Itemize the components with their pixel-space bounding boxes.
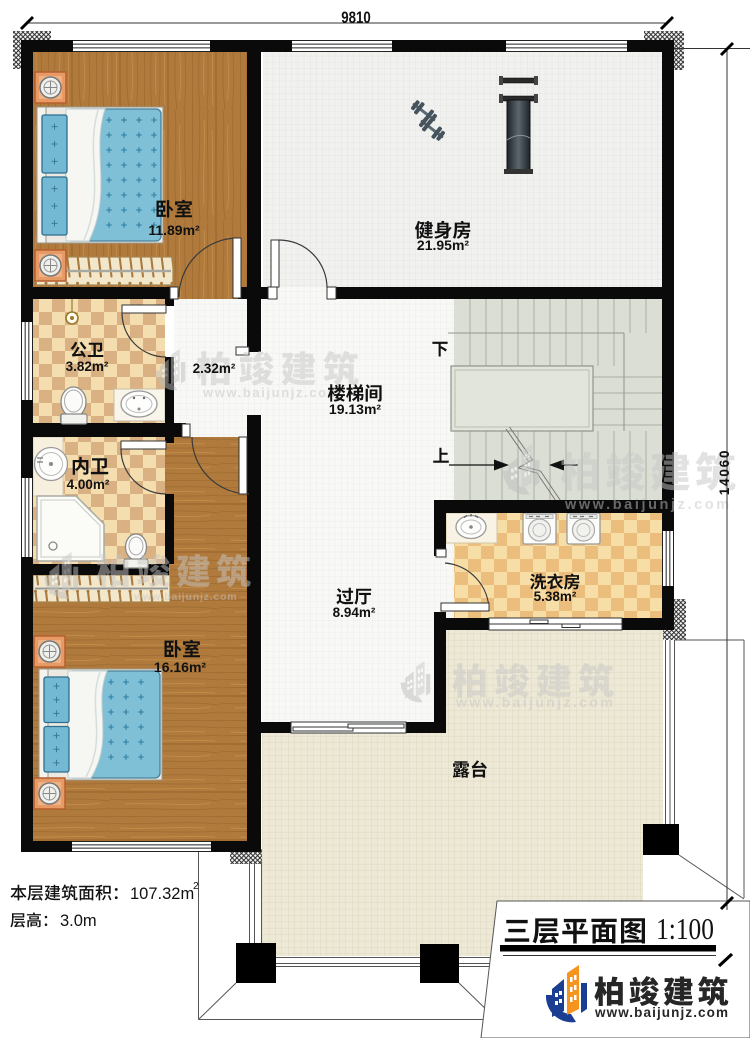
svg-text:www.baijunjz.com: www.baijunjz.com [133, 591, 237, 603]
svg-text:2.32m²: 2.32m² [193, 361, 236, 376]
svg-text:www.baijunjz.com: www.baijunjz.com [564, 497, 732, 513]
svg-text:www.baijunjz.com: www.baijunjz.com [455, 694, 615, 710]
svg-text:11.89m²: 11.89m² [148, 222, 200, 238]
svg-text:14060: 14060 [717, 449, 732, 496]
svg-text:5.38m²: 5.38m² [534, 589, 577, 604]
svg-text:21.95m²: 21.95m² [417, 237, 469, 253]
svg-text:16.16m²: 16.16m² [154, 659, 206, 675]
svg-text:3.0m: 3.0m [60, 912, 97, 930]
svg-text:1:100: 1:100 [656, 913, 714, 947]
svg-text:9810: 9810 [341, 9, 370, 28]
svg-text:8.94m²: 8.94m² [333, 605, 376, 620]
svg-text:19.13m²: 19.13m² [329, 401, 381, 417]
svg-text:3.82m²: 3.82m² [66, 359, 109, 374]
svg-text:4.00m²: 4.00m² [67, 477, 110, 492]
svg-text:www.baijunjz.com: www.baijunjz.com [202, 385, 341, 400]
svg-text:107.32m: 107.32m [130, 885, 194, 903]
svg-text:www.baijunjz.com: www.baijunjz.com [594, 1005, 729, 1020]
svg-text:2: 2 [193, 880, 199, 892]
